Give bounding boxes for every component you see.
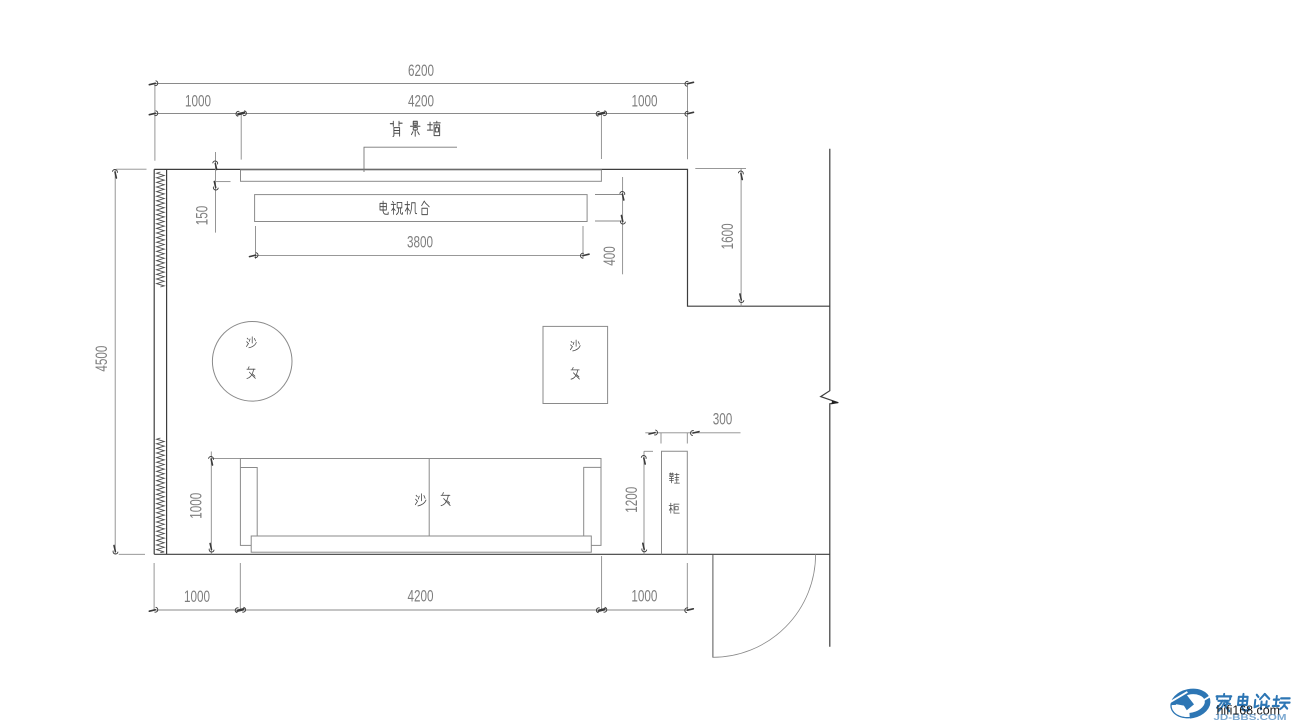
svg-text:hifi168.com: hifi168.com: [1217, 703, 1281, 717]
svg-text:4200: 4200: [408, 93, 434, 111]
svg-text:3800: 3800: [407, 234, 433, 252]
svg-text:1200: 1200: [623, 487, 641, 513]
svg-text:6200: 6200: [408, 62, 434, 80]
svg-text:1000: 1000: [188, 493, 206, 519]
svg-text:1000: 1000: [185, 93, 211, 111]
svg-text:150: 150: [193, 206, 211, 226]
svg-text:4200: 4200: [408, 588, 434, 606]
svg-text:400: 400: [601, 246, 619, 266]
svg-text:1600: 1600: [719, 223, 737, 249]
svg-text:4500: 4500: [93, 346, 111, 372]
svg-text:1000: 1000: [632, 93, 658, 111]
svg-text:300: 300: [713, 411, 733, 429]
svg-text:1000: 1000: [631, 588, 657, 606]
svg-text:1000: 1000: [184, 588, 210, 606]
